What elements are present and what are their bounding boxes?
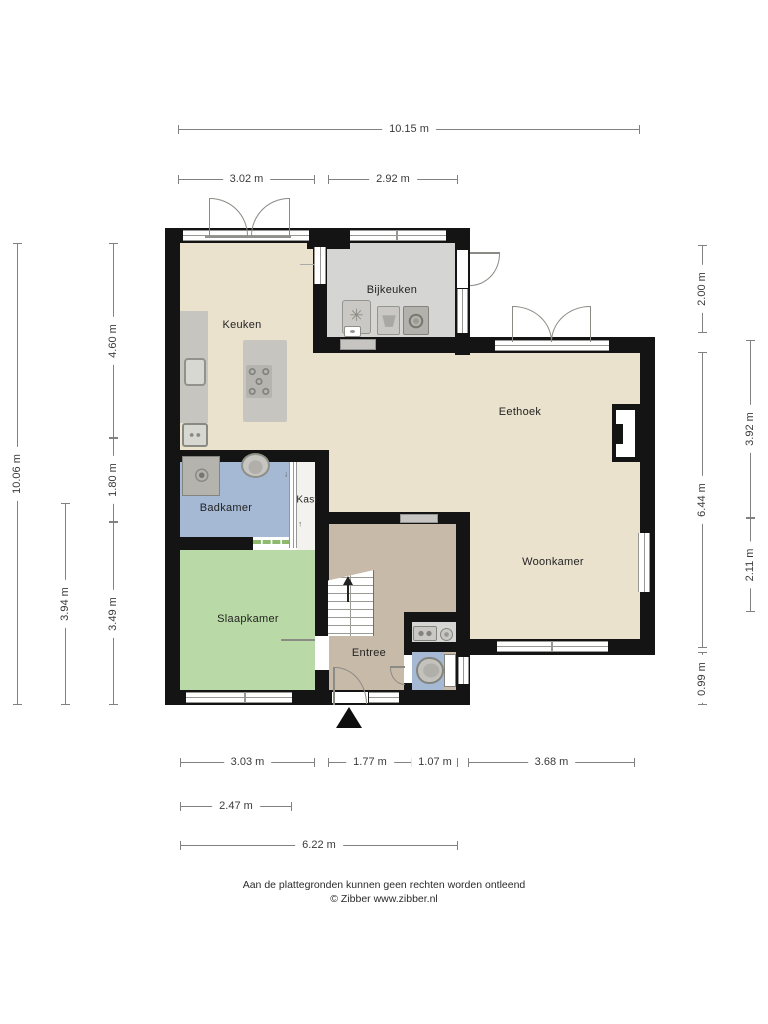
dimension-right-outer-lower: 2.11 m [750,518,751,612]
dimension-bottom-row3: 6.22 m [180,845,458,846]
room-label-entree: Entree [352,647,386,659]
dimension-left-middle: 1.80 m [113,438,114,522]
french-door-arc [210,198,248,236]
wall-badkamer-south [177,537,253,550]
window-toilet-east [458,657,469,684]
window-tick [244,692,246,703]
french-door-arc [251,198,289,236]
window-slaapkamer-south [186,692,292,703]
window-tick [551,641,553,652]
dimension-left-total: 10.06 m [17,243,18,705]
room-corridor-floor [313,352,458,512]
stairs-right-edge [373,570,374,636]
dimension-right-outer-upper: 3.92 m [750,340,751,518]
boiler-fan-icon: ✳ [349,306,363,325]
sliding-arrow-icon: ↓ [284,470,288,479]
dimension-label: 1.77 m [346,756,394,768]
slaapkamer-door-leaf [281,639,315,641]
eethoek-french-door-arc [551,306,590,342]
toilet-basin-icon [413,626,437,641]
dimension-label: 3.02 m [223,173,271,185]
window-woonkamer-east [638,533,650,592]
dimension-top-total: 10.15 m [178,129,640,130]
window-keuken-bijkeuken [314,247,326,284]
dimension-label: 10.15 m [382,123,436,135]
room-kast-floor [297,462,315,552]
dimension-label: 6.44 m [696,476,708,524]
dimension-label: 1.80 m [107,456,119,504]
stove-icon [246,365,272,398]
wall-entree-north [327,512,460,524]
sliding-door-bijkeuken [340,339,376,350]
dimension-right-inner-lower: 0.99 m [702,652,703,705]
dimension-left-outer-lower: 3.94 m [65,503,66,705]
door-opening-slaapkamer [315,636,329,670]
dashed-opening [253,540,290,544]
window-bijkeuken-east [457,289,468,333]
room-label-bijkeuken: Bijkeuken [367,284,417,296]
floorplan-canvas: ↓ ↑ ✳ Keuken B [0,0,768,1024]
room-label-badkamer: Badkamer [200,502,253,514]
toilet-bowl-icon [416,657,444,684]
french-door-leaf [289,198,290,236]
dimension-bottom-entree: 1.77 m [328,762,412,763]
dimension-right-inner-upper: 2.00 m [702,245,703,333]
room-label-kast: Kast [296,495,317,506]
wall-east [640,337,655,655]
wall-west [165,228,180,705]
dimension-label: 3.92 m [744,405,756,453]
room-label-woonkamer: Woonkamer [522,556,584,568]
dimension-label: 3.94 m [59,580,71,628]
dimension-label: 1.07 m [411,756,459,768]
toilet-cistern [444,654,456,687]
shower-icon [182,456,220,496]
window-sill [205,236,291,238]
dimension-bottom-row2: 2.47 m [180,806,292,807]
door-opening-bijkeuken-east [457,250,468,288]
footer-disclaimer: Aan de plattegronden kunnen geen rechten… [0,879,768,891]
sliding-arrow-icon: ↑ [298,520,302,529]
washing-machine-icon [403,306,429,335]
dimension-label: 10.06 m [11,447,23,501]
eethoek-french-door-leaf [590,306,591,342]
stairs-arrow-stem [347,584,349,602]
bijkeuken-door-arc [470,254,500,286]
footer-copyright: © Zibber www.zibber.nl [0,893,768,905]
laundry-basket-icon [377,306,400,335]
sliding-door-entree [400,514,438,523]
dimension-label: 0.99 m [696,655,708,703]
dimension-label: 2.92 m [369,173,417,185]
wall-toilet-divider [404,642,458,652]
door-opening-toilet [404,655,412,683]
dimension-right-inner-middle: 6.44 m [702,352,703,648]
window-sill [300,264,315,265]
window-entree-south [369,692,399,703]
dimension-label: 6.22 m [295,839,343,851]
dimension-label: 3.68 m [528,756,576,768]
window-tick [396,230,398,241]
dimension-label: 4.60 m [107,317,119,365]
dimension-label: 3.49 m [107,590,119,638]
window-bijkeuken-north [350,230,446,241]
room-label-eethoek: Eethoek [499,406,541,418]
room-eethoek-woonkamer-floor [455,353,640,639]
dimension-label: 2.00 m [696,265,708,313]
entrance-marker-icon [336,707,362,728]
dimension-label: 2.11 m [744,542,756,589]
dimension-top-bijkeuken: 2.92 m [328,179,458,180]
basket-shape [381,314,397,328]
wall-toilet-north [404,612,460,622]
room-label-keuken: Keuken [222,319,261,331]
room-label-slaapkamer: Slaapkamer [217,613,279,625]
dimension-bottom-woonkamer: 3.68 m [468,762,635,763]
kitchen-sink-icon [184,358,206,386]
oven-icon [182,423,208,447]
eethoek-french-door-arc [513,306,552,342]
dimension-top-keuken: 3.02 m [178,179,315,180]
boiler-meter-icon [344,326,361,337]
dimension-bottom-slaapkamer: 3.03 m [180,762,315,763]
dimension-label: 3.03 m [224,756,272,768]
dimension-left-lower: 3.49 m [113,522,114,705]
dimension-left-upper: 4.60 m [113,243,114,438]
chimney-niche-tab [616,424,623,444]
round-basin-icon [440,628,453,641]
dimension-label: 2.47 m [212,800,260,812]
bathroom-sink-icon [241,453,270,478]
dimension-bottom-toilet: 1.07 m [412,762,458,763]
